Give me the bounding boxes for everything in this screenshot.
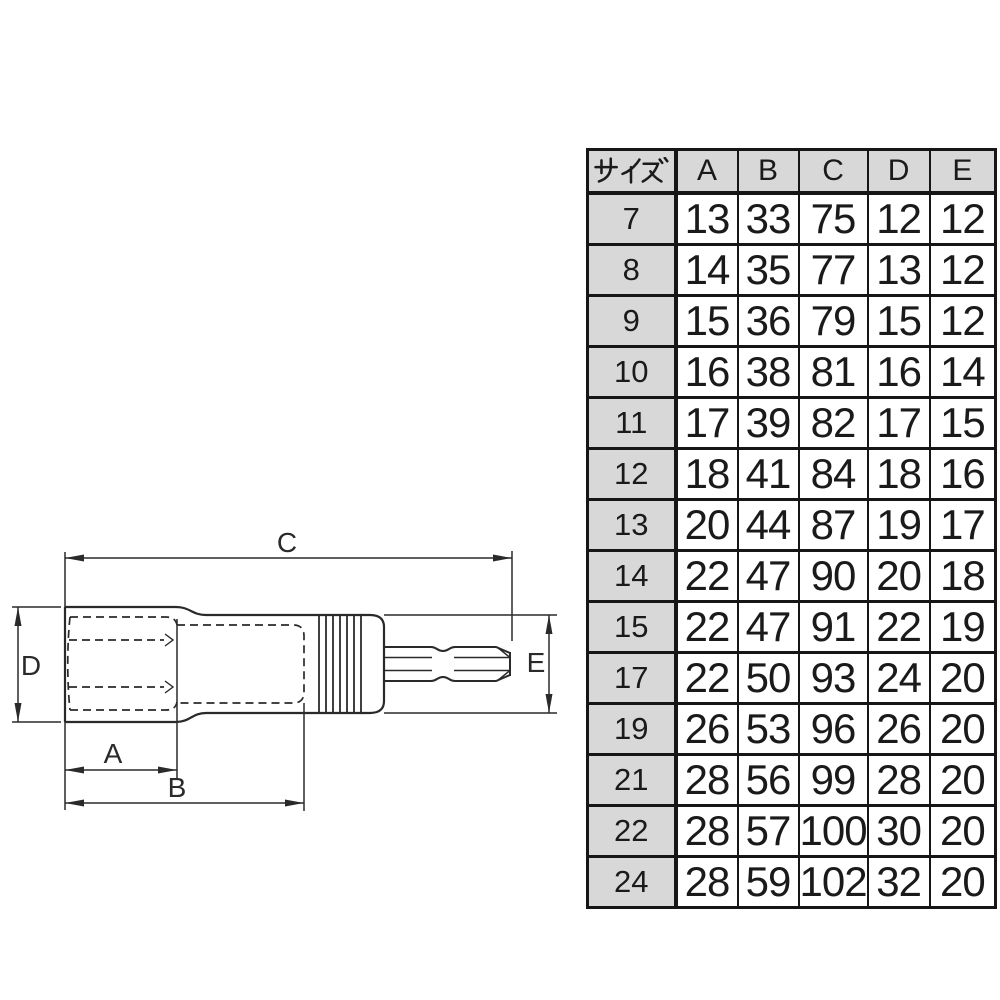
value-cell: 32 (868, 856, 930, 907)
table-row: 91536791512 (588, 295, 996, 346)
value-cell: 99 (799, 754, 868, 805)
value-cell: 20 (676, 499, 738, 550)
table-row: 81435771312 (588, 244, 996, 295)
spec-table: サイズ A B C D E (586, 148, 997, 909)
table-row: 172250932420 (588, 652, 996, 703)
value-cell: 50 (738, 652, 799, 703)
size-cell: 9 (588, 295, 676, 346)
size-cell: 17 (588, 652, 676, 703)
size-cell: 22 (588, 805, 676, 856)
dim-label-e: E (527, 647, 546, 678)
value-cell: 20 (930, 805, 996, 856)
value-cell: 24 (868, 652, 930, 703)
table-row: 192653962620 (588, 703, 996, 754)
value-cell: 90 (799, 550, 868, 601)
hex-bit-shank (384, 647, 510, 681)
col-header-b: B (738, 150, 799, 193)
socket-outline (65, 607, 384, 722)
value-cell: 22 (676, 601, 738, 652)
table-row: 2228571003020 (588, 805, 996, 856)
value-cell: 16 (676, 346, 738, 397)
table-row: 132044871917 (588, 499, 996, 550)
page: C D E A B サイズ (0, 0, 1000, 1000)
table-row: 101638811614 (588, 346, 996, 397)
size-header-glyphs (593, 157, 669, 184)
internal-bore-dashed (68, 617, 304, 710)
value-cell: 59 (738, 856, 799, 907)
value-cell: 17 (676, 397, 738, 448)
value-cell: 84 (799, 448, 868, 499)
value-cell: 20 (930, 652, 996, 703)
value-cell: 18 (868, 448, 930, 499)
value-cell: 20 (930, 703, 996, 754)
value-cell: 19 (930, 601, 996, 652)
value-cell: 26 (676, 703, 738, 754)
value-cell: 81 (799, 346, 868, 397)
size-cell: 24 (588, 856, 676, 907)
value-cell: 47 (738, 601, 799, 652)
size-cell: 8 (588, 244, 676, 295)
value-cell: 22 (676, 550, 738, 601)
size-cell: 10 (588, 346, 676, 397)
value-cell: 41 (738, 448, 799, 499)
value-cell: 12 (868, 193, 930, 245)
knurled-collar-ribs (319, 615, 361, 713)
table-row: 111739821715 (588, 397, 996, 448)
value-cell: 87 (799, 499, 868, 550)
value-cell: 75 (799, 193, 868, 245)
dim-label-d: D (21, 650, 41, 681)
table-row: 2428591023220 (588, 856, 996, 907)
value-cell: 33 (738, 193, 799, 245)
size-cell: 15 (588, 601, 676, 652)
value-cell: 19 (868, 499, 930, 550)
value-cell: 18 (676, 448, 738, 499)
value-cell: 12 (930, 244, 996, 295)
header-row: サイズ A B C D E (588, 150, 996, 193)
size-cell: 11 (588, 397, 676, 448)
value-cell: 28 (868, 754, 930, 805)
value-cell: 17 (930, 499, 996, 550)
value-cell: 22 (868, 601, 930, 652)
size-cell: 14 (588, 550, 676, 601)
table-row: 212856992820 (588, 754, 996, 805)
hex-bore-corner-marks (165, 634, 173, 693)
table-row: 152247912219 (588, 601, 996, 652)
value-cell: 14 (930, 346, 996, 397)
table-row: 121841841816 (588, 448, 996, 499)
value-cell: 100 (799, 805, 868, 856)
value-cell: 15 (676, 295, 738, 346)
size-cell: 19 (588, 703, 676, 754)
value-cell: 16 (868, 346, 930, 397)
value-cell: 82 (799, 397, 868, 448)
value-cell: 28 (676, 856, 738, 907)
col-header-e: E (930, 150, 996, 193)
col-header-a: A (676, 150, 738, 193)
table-row: 142247902018 (588, 550, 996, 601)
size-cell: 13 (588, 499, 676, 550)
value-cell: 16 (930, 448, 996, 499)
value-cell: 93 (799, 652, 868, 703)
value-cell: 102 (799, 856, 868, 907)
value-cell: 14 (676, 244, 738, 295)
value-cell: 35 (738, 244, 799, 295)
value-cell: 30 (868, 805, 930, 856)
value-cell: 28 (676, 754, 738, 805)
col-header-c: C (799, 150, 868, 193)
table-row: 71333751212 (588, 193, 996, 245)
value-cell: 12 (930, 193, 996, 245)
size-cell: 21 (588, 754, 676, 805)
value-cell: 96 (799, 703, 868, 754)
value-cell: 39 (738, 397, 799, 448)
value-cell: 56 (738, 754, 799, 805)
value-cell: 18 (930, 550, 996, 601)
value-cell: 47 (738, 550, 799, 601)
col-header-size: サイズ (588, 150, 676, 193)
value-cell: 20 (868, 550, 930, 601)
value-cell: 12 (930, 295, 996, 346)
value-cell: 20 (930, 754, 996, 805)
value-cell: 13 (676, 193, 738, 245)
value-cell: 22 (676, 652, 738, 703)
size-cell: 7 (588, 193, 676, 245)
value-cell: 15 (930, 397, 996, 448)
value-cell: 15 (868, 295, 930, 346)
value-cell: 44 (738, 499, 799, 550)
dim-label-c: C (277, 527, 297, 558)
value-cell: 57 (738, 805, 799, 856)
dim-label-a: A (104, 738, 123, 769)
value-cell: 28 (676, 805, 738, 856)
value-cell: 20 (930, 856, 996, 907)
value-cell: 77 (799, 244, 868, 295)
value-cell: 79 (799, 295, 868, 346)
value-cell: 26 (868, 703, 930, 754)
value-cell: 36 (738, 295, 799, 346)
value-cell: 38 (738, 346, 799, 397)
spec-table-body: サイズ A B C D E (588, 150, 996, 908)
size-cell: 12 (588, 448, 676, 499)
value-cell: 17 (868, 397, 930, 448)
dim-label-b: B (168, 772, 187, 803)
value-cell: 13 (868, 244, 930, 295)
value-cell: 53 (738, 703, 799, 754)
col-header-d: D (868, 150, 930, 193)
value-cell: 91 (799, 601, 868, 652)
